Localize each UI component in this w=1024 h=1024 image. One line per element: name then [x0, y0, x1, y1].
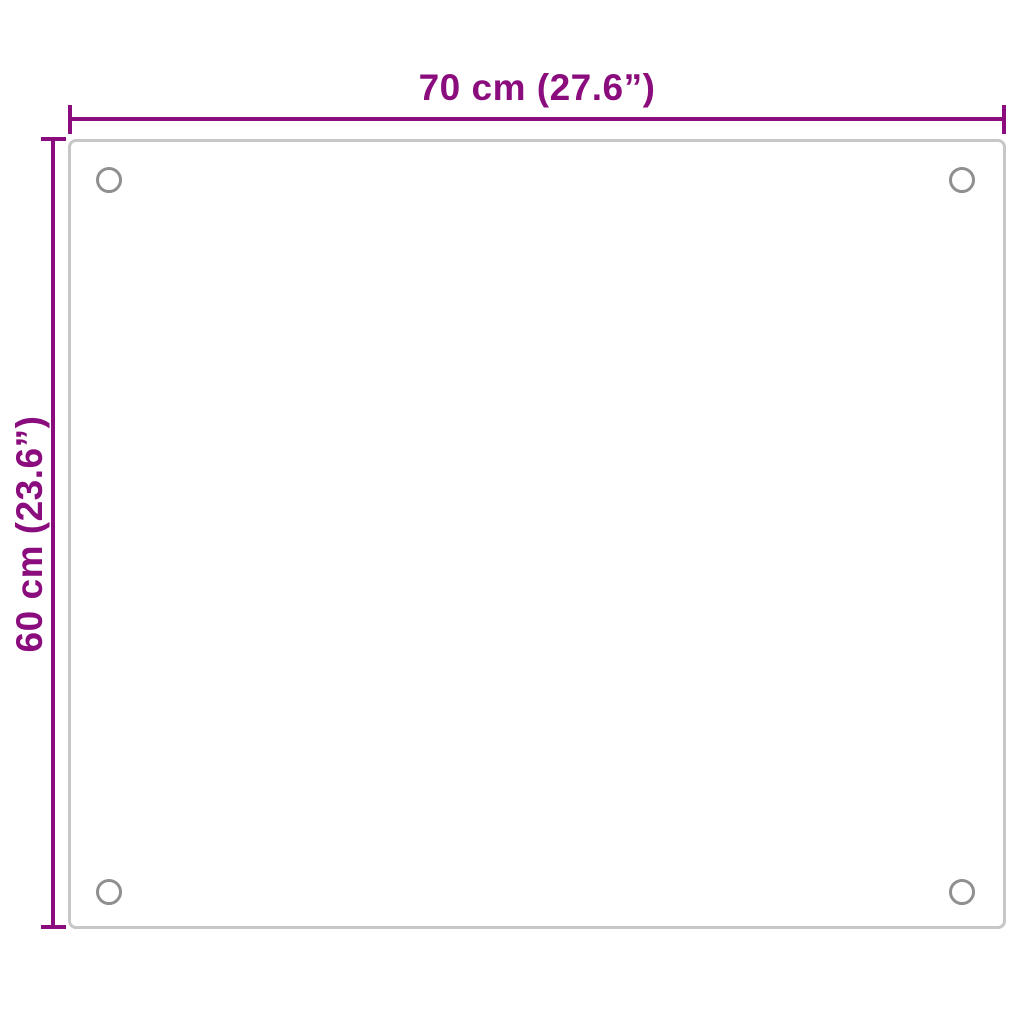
mounting-hole-top-left	[96, 167, 122, 193]
height-dimension-label: 60 cm (23.6”)	[8, 139, 52, 929]
width-dimension-line	[68, 117, 1006, 121]
height-dimension-tick-bottom	[41, 925, 66, 929]
width-dimension-tick-right	[1002, 105, 1006, 134]
width-dimension-label: 70 cm (27.6”)	[68, 66, 1006, 110]
mounting-hole-top-right	[949, 167, 975, 193]
height-dimension-line	[51, 139, 55, 929]
dimension-diagram-canvas: 70 cm (27.6”) 60 cm (23.6”)	[0, 0, 1024, 1024]
mounting-hole-bottom-right	[949, 879, 975, 905]
splashback-panel	[68, 139, 1006, 929]
mounting-hole-bottom-left	[96, 879, 122, 905]
